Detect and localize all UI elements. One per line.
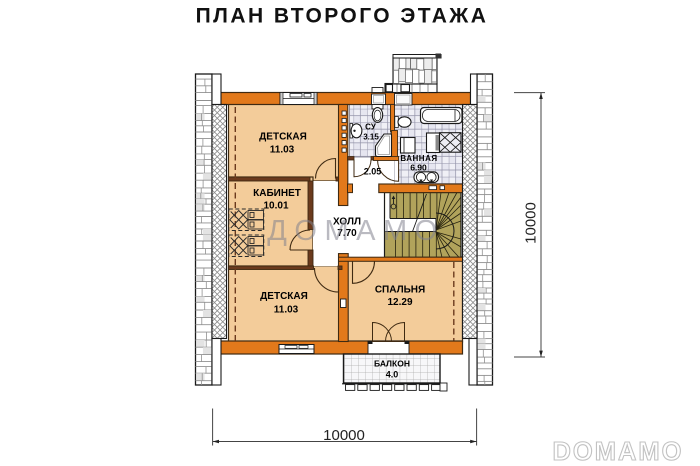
svg-text:10.01: 10.01 <box>263 201 288 212</box>
svg-text:2.05: 2.05 <box>364 167 382 177</box>
svg-text:СПАЛЬНЯ: СПАЛЬНЯ <box>375 285 425 296</box>
svg-text:12.29: 12.29 <box>387 297 412 308</box>
svg-text:ДЕТСКАЯ: ДЕТСКАЯ <box>259 132 307 143</box>
svg-text:ДОМАМО: ДОМАМО <box>267 215 444 247</box>
svg-text:СУ: СУ <box>365 123 377 132</box>
svg-text:DOMAMO: DOMAMO <box>553 438 684 466</box>
svg-text:10000: 10000 <box>523 202 540 244</box>
svg-text:10000: 10000 <box>323 427 365 444</box>
svg-text:КАБИНЕТ: КАБИНЕТ <box>253 188 301 199</box>
svg-text:ДЕТСКАЯ: ДЕТСКАЯ <box>260 291 308 302</box>
svg-text:БАЛКОН: БАЛКОН <box>374 359 410 369</box>
svg-text:6.90: 6.90 <box>410 163 427 173</box>
svg-text:4.0: 4.0 <box>386 370 399 380</box>
svg-text:11.03: 11.03 <box>274 305 299 316</box>
svg-text:3.15: 3.15 <box>363 133 379 142</box>
svg-text:ПЛАН ВТОРОГО ЭТАЖА: ПЛАН ВТОРОГО ЭТАЖА <box>196 5 489 28</box>
svg-text:11.03: 11.03 <box>270 145 295 156</box>
